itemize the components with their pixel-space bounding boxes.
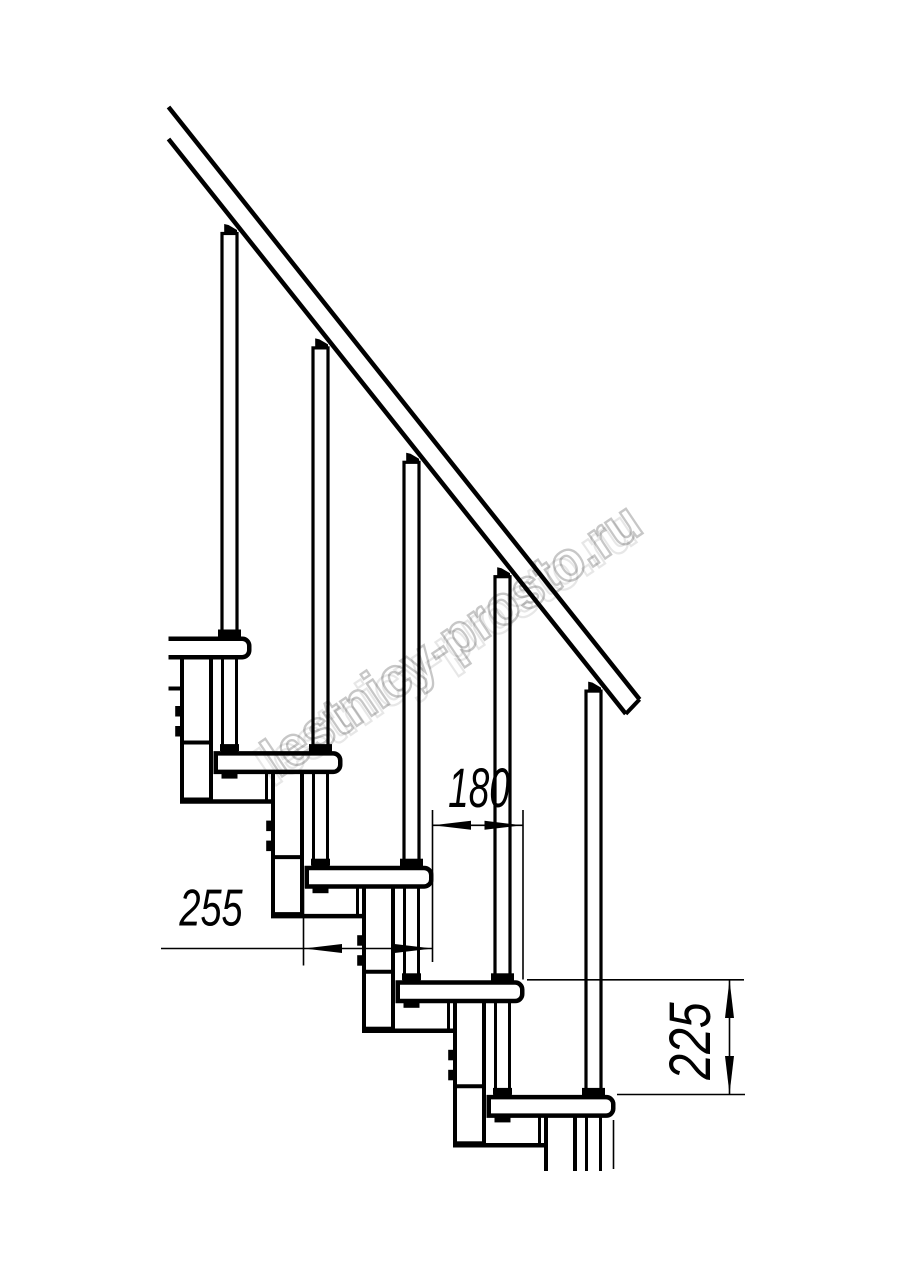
svg-text:255: 255 xyxy=(178,878,243,936)
svg-text:225: 225 xyxy=(658,1002,723,1081)
svg-text:180: 180 xyxy=(448,757,510,820)
